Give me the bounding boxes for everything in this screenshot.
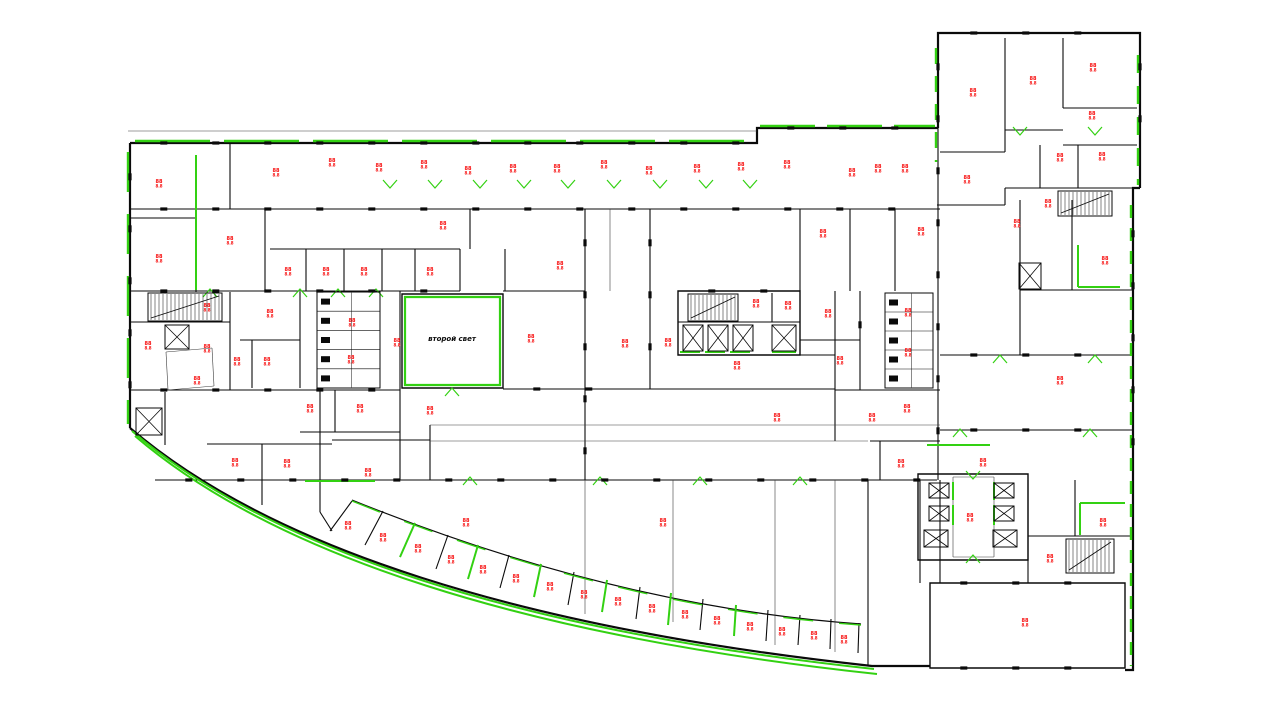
room-label: 888.8 (272, 168, 280, 177)
room-label: 888.8 (283, 459, 291, 468)
wall-ticks-layer (128, 31, 1141, 669)
opening-tick (809, 478, 816, 481)
opening-tick (445, 478, 452, 481)
opening-tick (787, 126, 794, 129)
room-label: 888.8 (1056, 376, 1064, 385)
room-label: 888.8 (1021, 618, 1029, 627)
room-label: 888.8 (824, 309, 832, 318)
elevator-shaft (136, 408, 162, 435)
outer-wall (938, 33, 1140, 188)
opening-tick (585, 387, 592, 390)
elevator-shaft (1019, 263, 1041, 289)
door-swing-chevron (473, 180, 487, 188)
opening-tick (289, 478, 296, 481)
room-label: 888.8 (527, 334, 535, 343)
room-label: 888.8 (1013, 219, 1021, 228)
opening-tick (583, 343, 586, 350)
green-accent-path (352, 501, 861, 625)
opening-tick (1064, 581, 1071, 584)
room-label: 888.8 (1029, 76, 1037, 85)
room-label: 888.8 (306, 404, 314, 413)
room-label: 888.8 (773, 413, 781, 422)
room-label: 888.8 (752, 299, 760, 308)
room-label: 888.8 (203, 303, 211, 312)
room-label: 888.8 (868, 413, 876, 422)
opening-tick (784, 207, 791, 210)
wall-path (678, 291, 800, 355)
elevator-shaft (929, 506, 949, 521)
opening-tick (891, 126, 898, 129)
room-label: 888.8 (263, 357, 271, 366)
opening-tick (936, 115, 939, 122)
door-swing-chevron (331, 289, 345, 297)
room-label: 888.8 (420, 160, 428, 169)
opening-tick (680, 207, 687, 210)
room-label: 888.8 (546, 582, 554, 591)
elevator-shaft (772, 325, 796, 351)
door-swing-chevron (653, 180, 667, 188)
door-swing-chevron (463, 477, 477, 485)
toilet-fixture (321, 337, 330, 343)
opening-tick (1131, 334, 1134, 341)
door-swing-chevron (693, 477, 707, 485)
room-label: 888.8 (509, 164, 517, 173)
opening-tick (368, 141, 375, 144)
room-label: 888.8 (645, 166, 653, 175)
green-accent-line (468, 545, 478, 579)
room-label: 888.8 (203, 344, 211, 353)
opening-tick (601, 478, 608, 481)
opening-tick (1074, 31, 1081, 34)
door-swing-chevron (743, 180, 757, 188)
room-label: 888.8 (784, 301, 792, 310)
room-label: 888.8 (512, 574, 520, 583)
walls-layer (130, 33, 1140, 670)
room-label: 888.8 (344, 521, 352, 530)
opening-tick (913, 478, 920, 481)
room-label: 888.8 (648, 604, 656, 613)
opening-tick (316, 207, 323, 210)
room-label: 888.8 (969, 88, 977, 97)
wall-segment (500, 555, 509, 588)
opening-tick (368, 207, 375, 210)
opening-tick (653, 478, 660, 481)
elevator-shaft (708, 325, 728, 351)
toilet-fixture (321, 375, 330, 381)
room-label: 888.8 (447, 555, 455, 564)
opening-tick (1064, 666, 1071, 669)
room-label: 888.8 (746, 622, 754, 631)
room-label: 888.8 (155, 254, 163, 263)
floorplan-canvas: 888.8888.8888.8888.8888.8888.8888.8888.8… (0, 0, 1288, 724)
wall-segment (568, 572, 574, 605)
opening-tick (128, 277, 131, 284)
door-swing-chevron (966, 555, 980, 563)
room-label: 888.8 (426, 267, 434, 276)
toilet-fixture (321, 299, 330, 305)
opening-tick (264, 388, 271, 391)
door-swing-chevron (561, 180, 575, 188)
room-label: 888.8 (778, 627, 786, 636)
opening-tick (960, 581, 967, 584)
opening-tick (861, 478, 868, 481)
room-label: 888.8 (819, 229, 827, 238)
opening-tick (160, 141, 167, 144)
opening-tick (1012, 581, 1019, 584)
room-label: 888.8 (322, 267, 330, 276)
room-label: 888.8 (1056, 153, 1064, 162)
room-label: 888.8 (904, 308, 912, 317)
opening-tick (393, 478, 400, 481)
elevator-shaft (993, 530, 1017, 547)
room-label: 888.8 (903, 404, 911, 413)
opening-tick (583, 395, 586, 402)
toilet-fixture (321, 356, 330, 362)
door-swing-chevron (517, 180, 531, 188)
opening-tick (212, 141, 219, 144)
room-label: 888.8 (874, 164, 882, 173)
opening-tick (212, 289, 219, 292)
opening-tick (648, 239, 651, 246)
opening-tick (420, 141, 427, 144)
opening-tick (1022, 31, 1029, 34)
green-accent-line (400, 523, 415, 557)
wall-segment (830, 619, 831, 649)
opening-tick (576, 141, 583, 144)
room-label: 888.8 (439, 221, 447, 230)
elevator-shaft (929, 483, 949, 498)
room-label: 888.8 (979, 458, 987, 467)
room-label: 888.8 (348, 318, 356, 327)
door-swing-chevron (428, 180, 442, 188)
opening-tick (1131, 438, 1134, 445)
door-swing-chevron (993, 355, 1007, 363)
toilet-fixture (889, 319, 898, 325)
room-label: 888.8 (783, 160, 791, 169)
opening-tick (524, 207, 531, 210)
room-label: 888.8 (713, 616, 721, 625)
opening-tick (264, 141, 271, 144)
elevator-shaft (165, 325, 189, 349)
room-label: 888.8 (375, 163, 383, 172)
room-label: 888.8 (479, 565, 487, 574)
door-swing-chevron (1088, 355, 1102, 363)
room-label: 888.8 (284, 267, 292, 276)
atrium-caption: второй свет (428, 335, 477, 343)
room-label: 888.8 (556, 261, 564, 270)
wall-segment (320, 512, 332, 531)
room-label: 888.8 (231, 458, 239, 467)
opening-tick (576, 207, 583, 210)
opening-tick (648, 343, 651, 350)
opening-tick (936, 167, 939, 174)
room-label: 888.8 (733, 361, 741, 370)
room-label: 888.8 (328, 158, 336, 167)
opening-tick (524, 141, 531, 144)
opening-tick (1074, 428, 1081, 431)
green-accent-line (534, 564, 541, 597)
opening-tick (1022, 353, 1029, 356)
elevator-shaft (733, 325, 753, 351)
wall-segment (436, 535, 448, 569)
room-label: 888.8 (233, 357, 241, 366)
room-label: 888.8 (364, 468, 372, 477)
opening-tick (1131, 282, 1134, 289)
opening-tick (858, 321, 861, 328)
room-label: 888.8 (1088, 111, 1096, 120)
room-label: 888.8 (1099, 518, 1107, 527)
room-label: 888.8 (144, 341, 152, 350)
opening-tick (648, 291, 651, 298)
room-label: 888.8 (356, 404, 364, 413)
room-label: 888.8 (464, 166, 472, 175)
room-label: 888.8 (681, 610, 689, 619)
door-swing-chevron (966, 471, 980, 479)
floorplan-viewport: 888.8888.8888.8888.8888.8888.8888.8888.8… (0, 0, 1288, 724)
opening-tick (1022, 428, 1029, 431)
elevator-shaft (924, 530, 948, 547)
room-label: 888.8 (360, 267, 368, 276)
stair-run (1066, 539, 1114, 573)
opening-tick (316, 289, 323, 292)
opening-tick (497, 478, 504, 481)
opening-tick (1074, 353, 1081, 356)
opening-tick (160, 289, 167, 292)
opening-tick (732, 207, 739, 210)
door-swing-chevron (445, 388, 459, 396)
opening-tick (264, 289, 271, 292)
opening-tick (760, 289, 767, 292)
elevator-shaft (994, 506, 1014, 521)
room-label: 888.8 (848, 168, 856, 177)
opening-tick (368, 289, 375, 292)
opening-tick (836, 207, 843, 210)
opening-tick (936, 427, 939, 434)
room-label: 888.8 (347, 355, 355, 364)
opening-tick (936, 219, 939, 226)
opening-tick (583, 447, 586, 454)
opening-tick (1012, 666, 1019, 669)
room-label: 888.8 (621, 339, 629, 348)
opening-tick (628, 141, 635, 144)
stair-run (1058, 191, 1112, 216)
opening-tick (583, 239, 586, 246)
opening-tick (1138, 115, 1141, 122)
elevator-shaft (994, 483, 1014, 498)
opening-tick (368, 388, 375, 391)
opening-tick (212, 207, 219, 210)
opening-tick (420, 289, 427, 292)
room-label: 888.8 (897, 459, 905, 468)
room-label: 888.8 (693, 164, 701, 173)
room-label: 888.8 (901, 164, 909, 173)
toilet-fixture (889, 300, 898, 306)
room-label: 888.8 (737, 162, 745, 171)
opening-tick (185, 478, 192, 481)
room-label: 888.8 (1046, 554, 1054, 563)
opening-tick (128, 329, 131, 336)
room-label: 888.8 (1098, 152, 1106, 161)
opening-tick (888, 207, 895, 210)
room-label: 888.8 (966, 513, 974, 522)
opening-tick (128, 225, 131, 232)
opening-tick (160, 207, 167, 210)
opening-tick (732, 141, 739, 144)
room-label: 888.8 (600, 160, 608, 169)
opening-tick (757, 478, 764, 481)
room-label: 888.8 (379, 533, 387, 542)
thin-line (212, 348, 214, 386)
room-label: 888.8 (659, 518, 667, 527)
room-label: 888.8 (836, 356, 844, 365)
room-label: 888.8 (1101, 256, 1109, 265)
room-label: 888.8 (840, 635, 848, 644)
room-label: 888.8 (664, 338, 672, 347)
opening-tick (472, 141, 479, 144)
opening-tick (839, 126, 846, 129)
opening-tick (128, 173, 131, 180)
wall-segment (858, 623, 859, 653)
room-label: 888.8 (917, 227, 925, 236)
door-swing-chevron (699, 180, 713, 188)
thin-line (168, 386, 214, 390)
room-label: 888.8 (614, 597, 622, 606)
opening-tick (128, 381, 131, 388)
room-label: 888.8 (904, 348, 912, 357)
opening-tick (936, 271, 939, 278)
toilet-fixture (889, 338, 898, 344)
inner-arc-wall (352, 500, 861, 624)
room-label: 888.8 (266, 309, 274, 318)
opening-tick (936, 375, 939, 382)
door-swing-chevron (1088, 127, 1102, 135)
thin-line (166, 352, 168, 390)
toilet-stall-cluster (317, 292, 380, 388)
room-label: 888.8 (553, 164, 561, 173)
stair-direction-line (691, 297, 735, 318)
opening-tick (341, 478, 348, 481)
opening-tick (1131, 230, 1134, 237)
room-label: 888.8 (1089, 63, 1097, 72)
opening-tick (628, 207, 635, 210)
room-label: 888.8 (580, 590, 588, 599)
room-label: 888.8 (462, 518, 470, 527)
opening-tick (970, 353, 977, 356)
stair-direction-line (1069, 542, 1111, 570)
green-accent-line (602, 580, 607, 612)
room-label: 888.8 (226, 236, 234, 245)
stair-run (148, 293, 222, 321)
opening-tick (970, 31, 977, 34)
door-swing-chevron (607, 180, 621, 188)
room-label: 888.8 (155, 179, 163, 188)
toilet-fixture (889, 376, 898, 382)
opening-tick (705, 478, 712, 481)
opening-tick (237, 478, 244, 481)
opening-tick (583, 291, 586, 298)
opening-tick (533, 387, 540, 390)
opening-tick (264, 207, 271, 210)
opening-tick (472, 207, 479, 210)
stair-run (688, 294, 738, 321)
toilet-fixture (321, 318, 330, 324)
opening-tick (680, 141, 687, 144)
room-label: 888.8 (393, 338, 401, 347)
opening-tick (212, 388, 219, 391)
room-label: 888.8 (963, 175, 971, 184)
elevator-shaft (683, 325, 703, 351)
room-label: 888.8 (1044, 199, 1052, 208)
opening-tick (1138, 63, 1141, 70)
opening-tick (160, 388, 167, 391)
room-label: 888.8 (426, 406, 434, 415)
opening-tick (316, 388, 323, 391)
room-label: 888.8 (810, 631, 818, 640)
opening-tick (420, 207, 427, 210)
opening-tick (549, 478, 556, 481)
opening-tick (936, 63, 939, 70)
green-accent-path (132, 431, 874, 669)
opening-tick (316, 141, 323, 144)
toilet-fixture (889, 357, 898, 363)
opening-tick (970, 428, 977, 431)
room-label: 888.8 (193, 376, 201, 385)
door-swing-chevron (1013, 127, 1027, 135)
opening-tick (960, 666, 967, 669)
door-swing-chevron (793, 477, 807, 485)
opening-tick (936, 323, 939, 330)
room-label: 888.8 (414, 544, 422, 553)
opening-tick (708, 289, 715, 292)
opening-tick (1131, 386, 1134, 393)
door-swing-chevron (383, 180, 397, 188)
